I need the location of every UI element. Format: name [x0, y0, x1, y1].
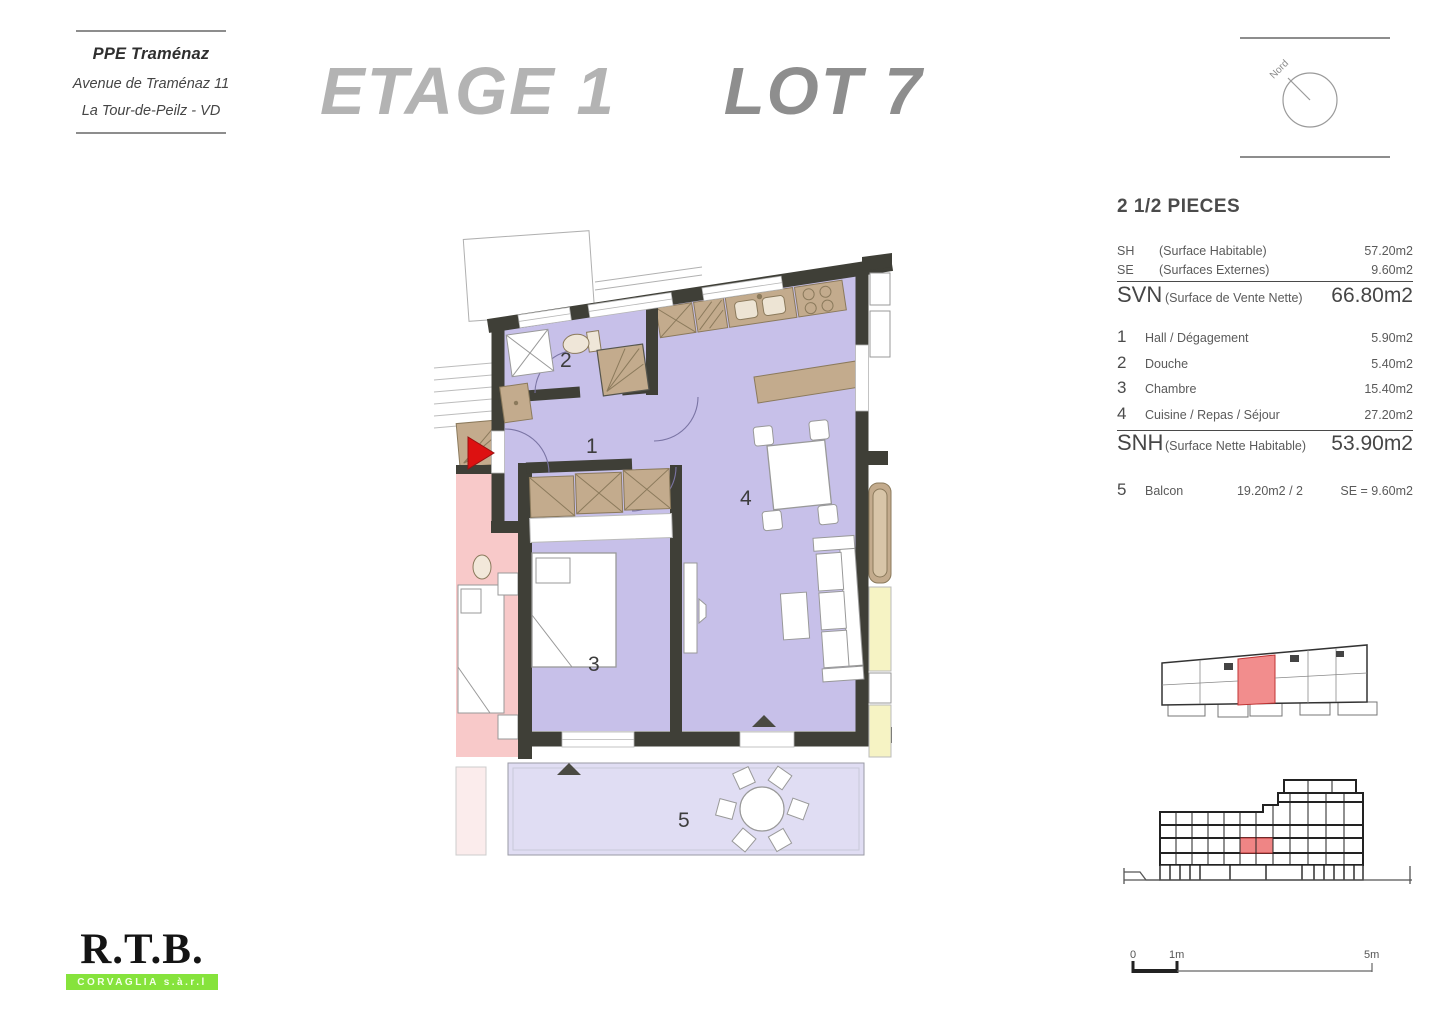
sh-value: 57.20m2	[1364, 242, 1413, 261]
room-list: 1 Hall / Dégagement 5.90m2 2 Douche 5.40…	[1117, 325, 1413, 504]
svn-value: 66.80m2	[1331, 286, 1413, 305]
logo-subtitle: CORVAGLIA s.à.r.l	[66, 974, 218, 990]
room-3-num: 3	[1117, 376, 1145, 401]
se-value: 9.60m2	[1371, 261, 1413, 280]
room-3-value: 15.40m2	[1364, 377, 1413, 402]
room-1-num: 1	[1117, 325, 1145, 350]
bed	[532, 553, 616, 667]
label-room-3: 3	[588, 653, 600, 676]
surface-row-se: SE (Surfaces Externes) 9.60m2	[1117, 261, 1413, 282]
scale-tick-1m: 1m	[1169, 949, 1184, 961]
neighbor-unit-right	[869, 273, 891, 757]
shower	[597, 344, 649, 396]
bath-cabinet	[500, 383, 533, 423]
floor-plan: 1 2 3 4 5	[430, 215, 900, 870]
title-etage: ETAGE 1	[320, 54, 616, 129]
north-needle	[1288, 78, 1310, 100]
address-line-1: Avenue de Traménaz 11	[62, 76, 240, 92]
scale-tick-0: 0	[1130, 949, 1136, 961]
neighbor-toilet	[473, 555, 491, 579]
snh-row: SNH (Surface Nette Habitable) 53.90m2	[1117, 430, 1413, 456]
elevation-drawing	[1118, 772, 1418, 897]
room-4-num: 4	[1117, 402, 1145, 427]
plan-sheet: PPE Traménaz Avenue de Traménaz 11 La To…	[0, 0, 1440, 1018]
label-room-5: 5	[678, 809, 690, 832]
balcony-row: 5 Balcon 19.20m2 / 2 SE = 9.60m2	[1117, 478, 1413, 504]
snh-code: SNH	[1117, 433, 1165, 452]
compass: Nord	[1235, 28, 1405, 168]
room-1-value: 5.90m2	[1371, 326, 1413, 351]
surface-row-svn: SVN (Surface de Vente Nette) 66.80m2	[1117, 285, 1413, 308]
sh-code: SH	[1117, 242, 1159, 261]
room-row-4: 4 Cuisine / Repas / Séjour 27.20m2	[1117, 402, 1413, 428]
label-room-2: 2	[560, 349, 572, 372]
address-bottom-rule	[76, 132, 226, 134]
key-plan	[1140, 633, 1385, 738]
room-row-1: 1 Hall / Dégagement 5.90m2	[1117, 325, 1413, 351]
address-line-2: La Tour-de-Peilz - VD	[62, 103, 240, 119]
room-2-value: 5.40m2	[1371, 352, 1413, 377]
label-room-4: 4	[740, 487, 752, 510]
logo-name: R.T.B.	[66, 928, 218, 971]
room-4-label: Cuisine / Repas / Séjour	[1145, 403, 1364, 428]
se-label: (Surfaces Externes)	[1159, 261, 1371, 280]
room-2-label: Douche	[1145, 352, 1371, 377]
address-top-rule	[76, 30, 226, 32]
room-3-label: Chambre	[1145, 377, 1364, 402]
sh-label: (Surface Habitable)	[1159, 242, 1364, 261]
balcony-value: SE = 9.60m2	[1303, 479, 1413, 504]
neighbor-balcony-sliver	[456, 767, 486, 855]
balcony-area	[456, 763, 864, 855]
apartment-type: 2 1/2 PIECES	[1117, 196, 1413, 218]
room-4-value: 27.20m2	[1364, 403, 1413, 428]
surface-summary-panel: 2 1/2 PIECES SH (Surface Habitable) 57.2…	[1117, 196, 1413, 504]
snh-value: 53.90m2	[1331, 434, 1413, 453]
label-room-1: 1	[586, 435, 598, 458]
balcony-detail: 19.20m2 / 2	[1203, 479, 1303, 504]
scale-tick-5m: 5m	[1364, 949, 1379, 961]
surface-row-sh: SH (Surface Habitable) 57.20m2	[1117, 242, 1413, 261]
svn-label: (Surface de Vente Nette)	[1165, 289, 1331, 308]
scale-bar-graphic	[1133, 961, 1372, 973]
address-block: PPE Traménaz Avenue de Traménaz 11 La To…	[62, 30, 240, 134]
snh-label: (Surface Nette Habitable)	[1165, 437, 1331, 456]
se-code: SE	[1117, 261, 1159, 280]
project-name: PPE Traménaz	[62, 45, 240, 64]
balcony-num: 5	[1117, 478, 1145, 503]
svn-code: SVN	[1117, 285, 1165, 304]
coffee-table	[780, 592, 809, 640]
room-1-label: Hall / Dégagement	[1145, 326, 1371, 351]
room-row-2: 2 Douche 5.40m2	[1117, 351, 1413, 377]
elevation-ground-floor	[1160, 865, 1363, 880]
balcony-round-table	[740, 787, 784, 831]
sheet-title: ETAGE 1LOT 7	[320, 58, 924, 125]
north-label: Nord	[1268, 58, 1291, 81]
wardrobe-front	[530, 513, 673, 542]
key-plan-highlight-unit	[1238, 655, 1275, 705]
washing-column	[506, 329, 553, 376]
room-2-num: 2	[1117, 351, 1145, 376]
title-lot: LOT 7	[724, 54, 924, 129]
balcony-label: Balcon	[1145, 479, 1203, 504]
scale-bar: 0 1m 5m	[1125, 945, 1395, 985]
room-row-3: 3 Chambre 15.40m2	[1117, 376, 1413, 402]
stairs-lines	[434, 363, 492, 428]
architect-logo: R.T.B. CORVAGLIA s.à.r.l	[66, 928, 218, 990]
